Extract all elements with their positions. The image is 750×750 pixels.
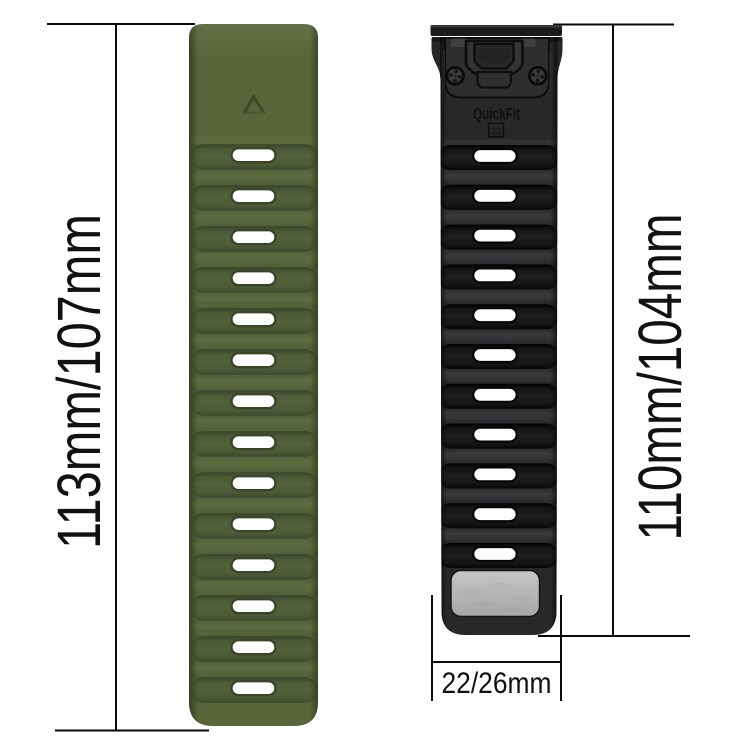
svg-text:110mm/104mm: 110mm/104mm xyxy=(626,214,694,541)
svg-text:113mm/107mm: 113mm/107mm xyxy=(45,214,113,549)
svg-text:22/26mm: 22/26mm xyxy=(442,667,552,700)
